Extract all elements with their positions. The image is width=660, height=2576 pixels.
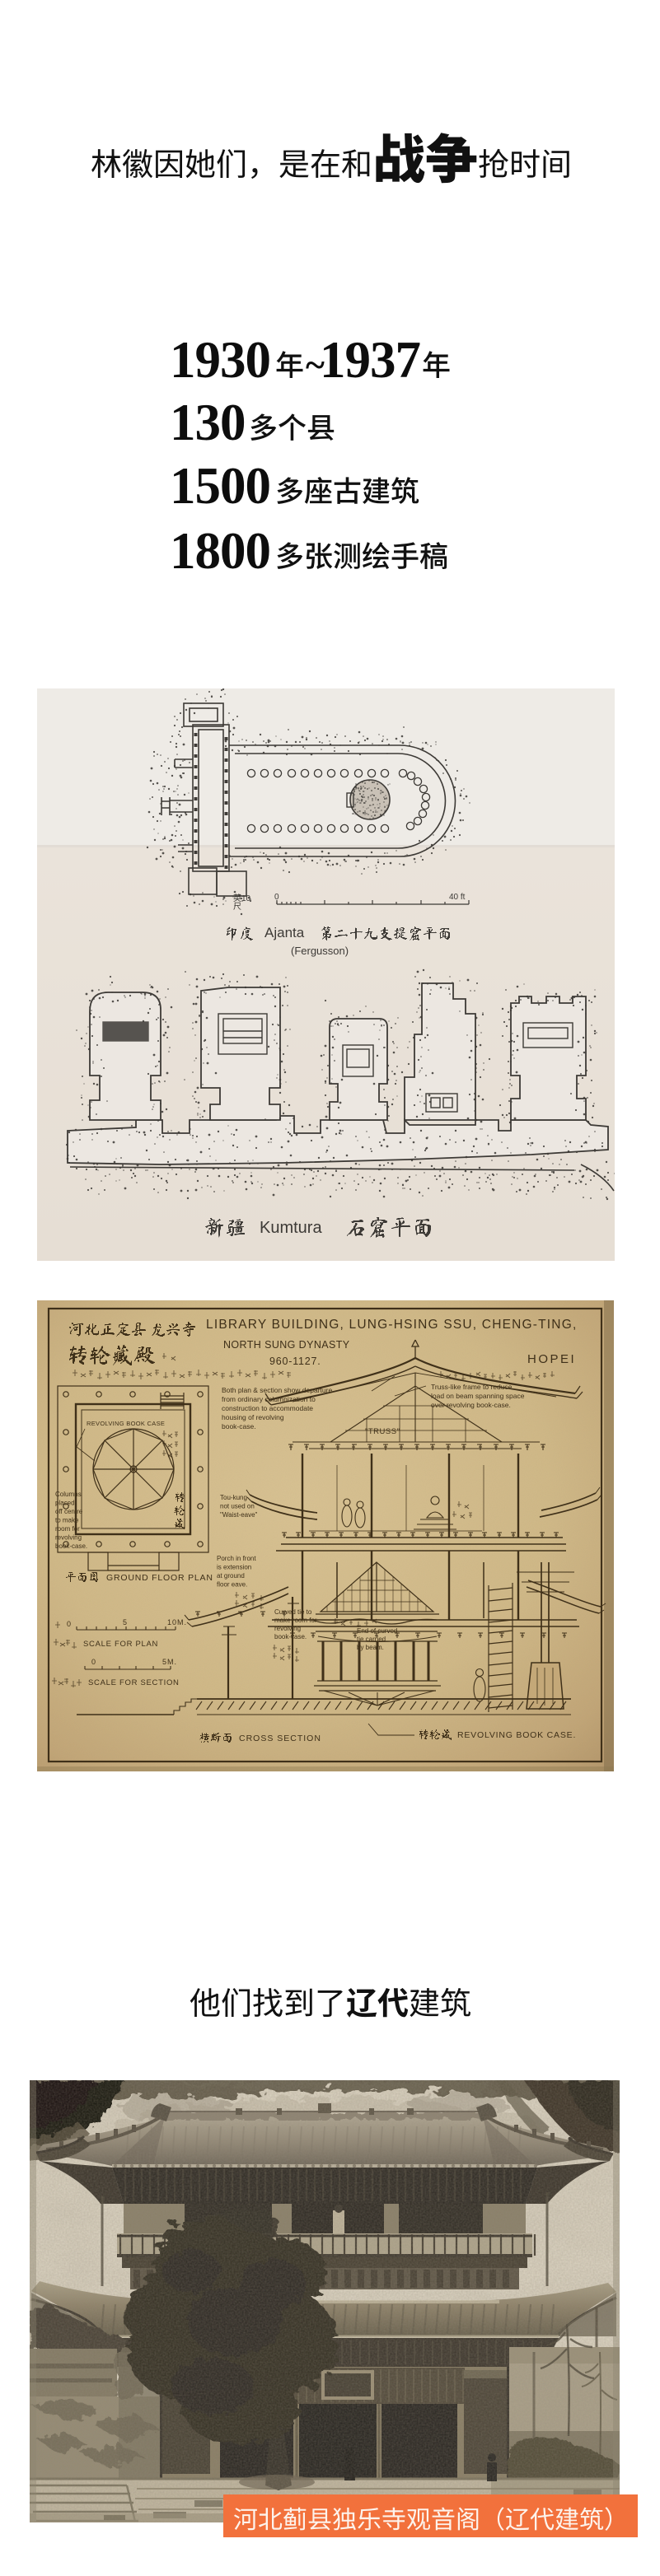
svg-text:room for: room for bbox=[55, 1525, 80, 1533]
svg-text:floor eave.: floor eave. bbox=[217, 1581, 247, 1589]
svg-text:SCALE FOR SECTION: SCALE FOR SECTION bbox=[88, 1678, 180, 1687]
svg-text:tie carried: tie carried bbox=[357, 1636, 386, 1643]
svg-text:Ajanta: Ajanta bbox=[264, 925, 305, 940]
svg-text:to make: to make bbox=[55, 1517, 79, 1524]
svg-text:Columns: Columns bbox=[55, 1491, 82, 1498]
svg-text:revolving: revolving bbox=[274, 1625, 301, 1632]
svg-text:Both plan & section show depar: Both plan & section show departure bbox=[222, 1386, 332, 1394]
svg-text:over revolving book-case.: over revolving book-case. bbox=[431, 1401, 511, 1409]
svg-text:book-case.: book-case. bbox=[222, 1422, 256, 1430]
svg-text:off centre: off centre bbox=[55, 1508, 83, 1515]
svg-text:make room for: make room for bbox=[274, 1617, 317, 1624]
svg-text:placed: placed bbox=[55, 1500, 75, 1507]
svg-text:not used on: not used on bbox=[220, 1503, 255, 1510]
svg-text:1930: 1930 bbox=[170, 331, 270, 389]
svg-text:1937: 1937 bbox=[320, 331, 420, 389]
svg-text:Curved tie to: Curved tie to bbox=[274, 1608, 312, 1616]
svg-text:"Waist-eave": "Waist-eave" bbox=[220, 1511, 258, 1519]
svg-text:CROSS SECTION: CROSS SECTION bbox=[239, 1734, 321, 1743]
svg-text:1500: 1500 bbox=[170, 457, 270, 515]
svg-text:Tou-kung: Tou-kung bbox=[220, 1494, 247, 1501]
svg-text:(Fergusson): (Fergusson) bbox=[291, 945, 349, 957]
svg-text:0: 0 bbox=[91, 1658, 96, 1666]
svg-text:NORTH SUNG DYNASTY: NORTH SUNG DYNASTY bbox=[223, 1339, 350, 1351]
svg-text:book-case.: book-case. bbox=[274, 1633, 307, 1640]
svg-text:at ground: at ground bbox=[217, 1572, 245, 1580]
svg-text:5M.: 5M. bbox=[162, 1658, 177, 1666]
svg-text:1800: 1800 bbox=[170, 522, 270, 580]
svg-text:960-1127.: 960-1127. bbox=[269, 1356, 321, 1367]
svg-text:book-case.: book-case. bbox=[55, 1542, 87, 1550]
svg-text:0: 0 bbox=[274, 893, 279, 902]
svg-text:"TRUSS": "TRUSS" bbox=[365, 1427, 400, 1436]
svg-text:HOPEI: HOPEI bbox=[527, 1352, 576, 1366]
svg-text:Porch in front: Porch in front bbox=[217, 1555, 256, 1562]
svg-text:REVOLVING BOOK CASE.: REVOLVING BOOK CASE. bbox=[457, 1730, 576, 1740]
svg-text:130: 130 bbox=[170, 394, 246, 451]
svg-text:is extension: is extension bbox=[217, 1564, 251, 1571]
svg-text:load on beam spanning space: load on beam spanning space bbox=[431, 1392, 525, 1400]
svg-text:construction to accommodate: construction to accommodate bbox=[222, 1404, 313, 1412]
svg-text:0: 0 bbox=[67, 1620, 72, 1628]
svg-text:尺: 尺 bbox=[233, 902, 241, 912]
svg-text:SCALE FOR PLAN: SCALE FOR PLAN bbox=[83, 1640, 158, 1649]
svg-text:Kumtura: Kumtura bbox=[260, 1219, 322, 1237]
svg-text:5: 5 bbox=[123, 1618, 128, 1626]
svg-text:REVOLVING BOOK CASE: REVOLVING BOOK CASE bbox=[87, 1420, 165, 1427]
svg-text:from ordinary columnization to: from ordinary columnization to bbox=[222, 1395, 316, 1403]
svg-text:Truss-like frame to reduce: Truss-like frame to reduce bbox=[431, 1383, 513, 1391]
svg-text:revolving: revolving bbox=[55, 1534, 82, 1542]
svg-text:by beam.: by beam. bbox=[357, 1644, 384, 1651]
svg-text:End of curved: End of curved bbox=[357, 1627, 397, 1635]
svg-text:housing of revolving: housing of revolving bbox=[222, 1413, 284, 1421]
svg-text:GROUND FLOOR PLAN: GROUND FLOOR PLAN bbox=[106, 1573, 213, 1583]
svg-text:10M.: 10M. bbox=[167, 1618, 187, 1626]
svg-text:40 ft: 40 ft bbox=[449, 893, 466, 902]
svg-text:LIBRARY BUILDING, LUNG-HSING: LIBRARY BUILDING, LUNG-HSING SSU, CHENG-… bbox=[206, 1318, 577, 1332]
